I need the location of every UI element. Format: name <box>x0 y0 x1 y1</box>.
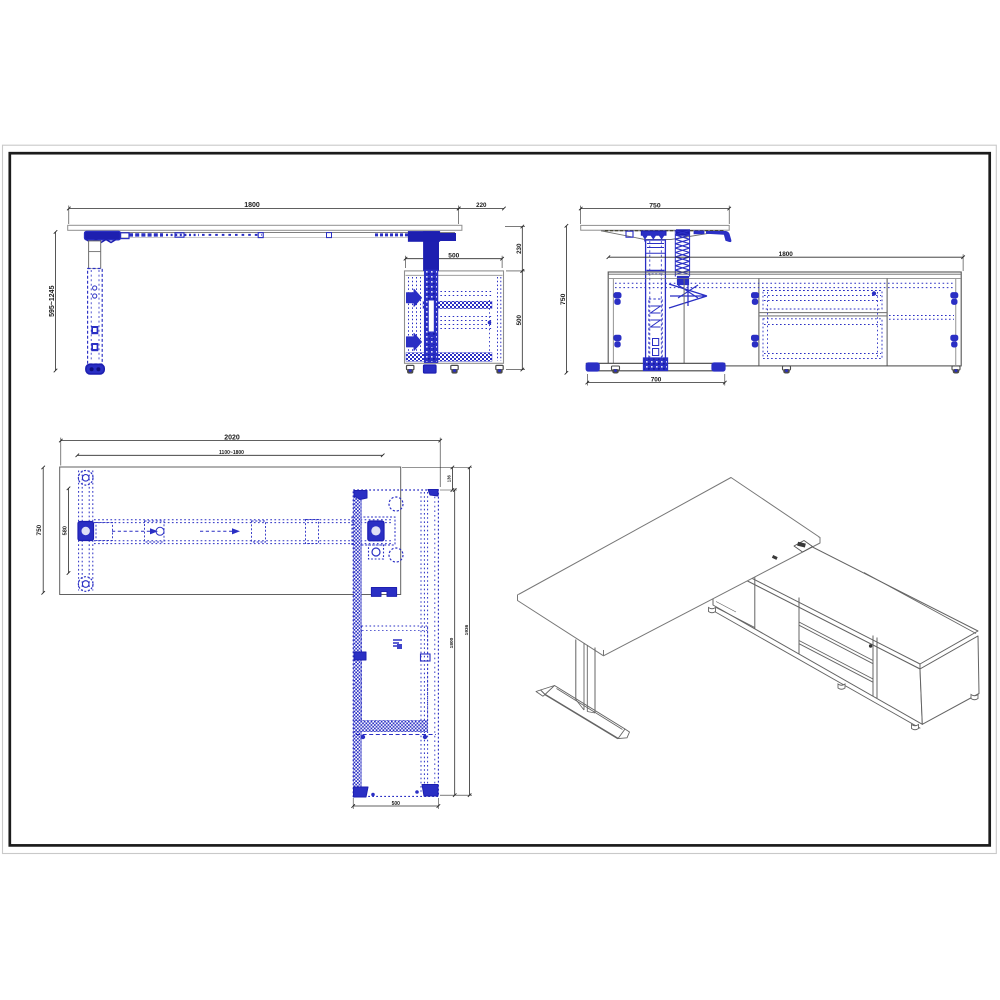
svg-text:1800: 1800 <box>244 202 260 209</box>
svg-text:1100~1800: 1100~1800 <box>219 450 244 456</box>
svg-text:136: 136 <box>447 475 452 483</box>
svg-text:580: 580 <box>63 526 69 535</box>
svg-text:500: 500 <box>392 801 401 807</box>
svg-text:2020: 2020 <box>224 434 240 441</box>
svg-text:220: 220 <box>476 202 487 209</box>
svg-text:595~1245: 595~1245 <box>49 285 56 316</box>
svg-text:750: 750 <box>560 293 567 305</box>
svg-text:230: 230 <box>516 243 523 254</box>
svg-text:750: 750 <box>649 202 661 209</box>
svg-text:750: 750 <box>36 524 43 535</box>
svg-text:500: 500 <box>516 315 523 326</box>
svg-text:700: 700 <box>651 376 662 383</box>
svg-text:1800: 1800 <box>779 251 794 258</box>
svg-text:1936: 1936 <box>464 624 470 635</box>
svg-text:1800: 1800 <box>449 637 455 648</box>
svg-text:500: 500 <box>448 252 459 259</box>
